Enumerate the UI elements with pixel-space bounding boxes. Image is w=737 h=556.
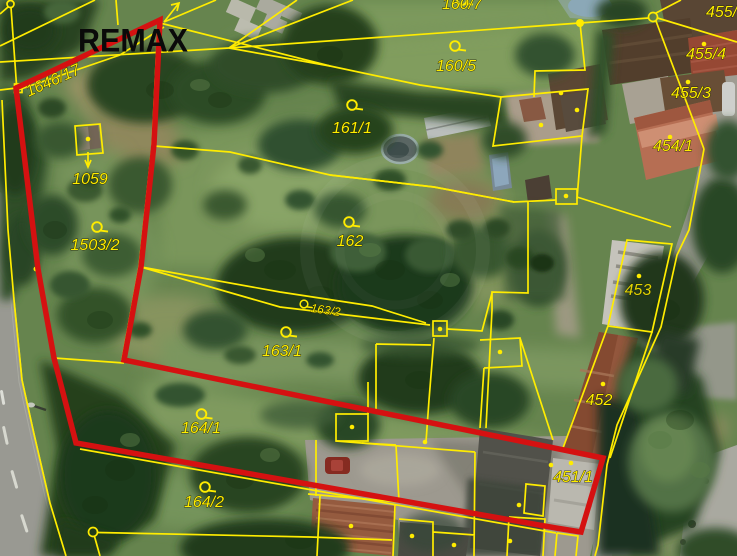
svg-text:455/4: 455/4 <box>686 46 726 63</box>
svg-text:REMAX: REMAX <box>78 23 189 59</box>
svg-text:455/3: 455/3 <box>671 85 711 102</box>
svg-text:163/1: 163/1 <box>262 343 302 360</box>
svg-text:161/1: 161/1 <box>332 120 372 137</box>
svg-text:162: 162 <box>337 233 364 250</box>
svg-text:160/7: 160/7 <box>442 0 483 13</box>
svg-text:164/1: 164/1 <box>181 420 221 437</box>
svg-text:164/2: 164/2 <box>184 494 224 511</box>
svg-text:160/5: 160/5 <box>436 58 476 75</box>
svg-text:454/1: 454/1 <box>653 138 693 155</box>
svg-text:1059: 1059 <box>72 171 108 188</box>
svg-text:455/1: 455/1 <box>706 4 737 21</box>
svg-text:451/1: 451/1 <box>553 469 593 486</box>
svg-text:1503/2: 1503/2 <box>71 237 120 254</box>
svg-text:453: 453 <box>625 282 652 299</box>
svg-text:452: 452 <box>586 392 613 409</box>
